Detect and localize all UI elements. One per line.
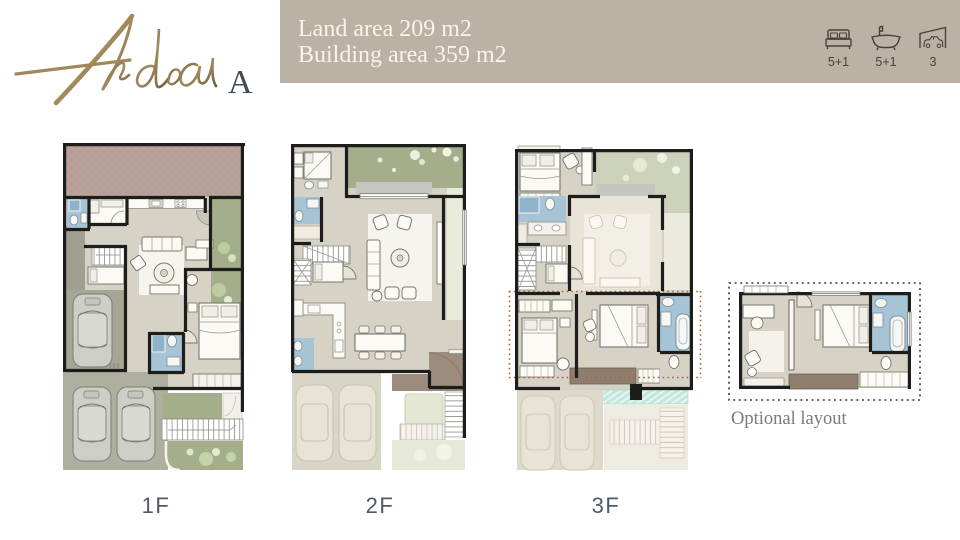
svg-text:Land area 209 m2: Land area 209 m2 (298, 16, 472, 42)
svg-text:5+1: 5+1 (875, 55, 896, 69)
svg-text:Optional layout: Optional layout (731, 409, 847, 429)
svg-text:A: A (228, 64, 253, 101)
svg-text:2F: 2F (366, 493, 395, 518)
svg-text:1F: 1F (142, 493, 171, 518)
svg-text:3F: 3F (592, 493, 621, 518)
svg-text:Building area 359 m2: Building area 359 m2 (298, 42, 507, 68)
svg-text:5+1: 5+1 (828, 55, 849, 69)
svg-text:3: 3 (930, 55, 937, 69)
